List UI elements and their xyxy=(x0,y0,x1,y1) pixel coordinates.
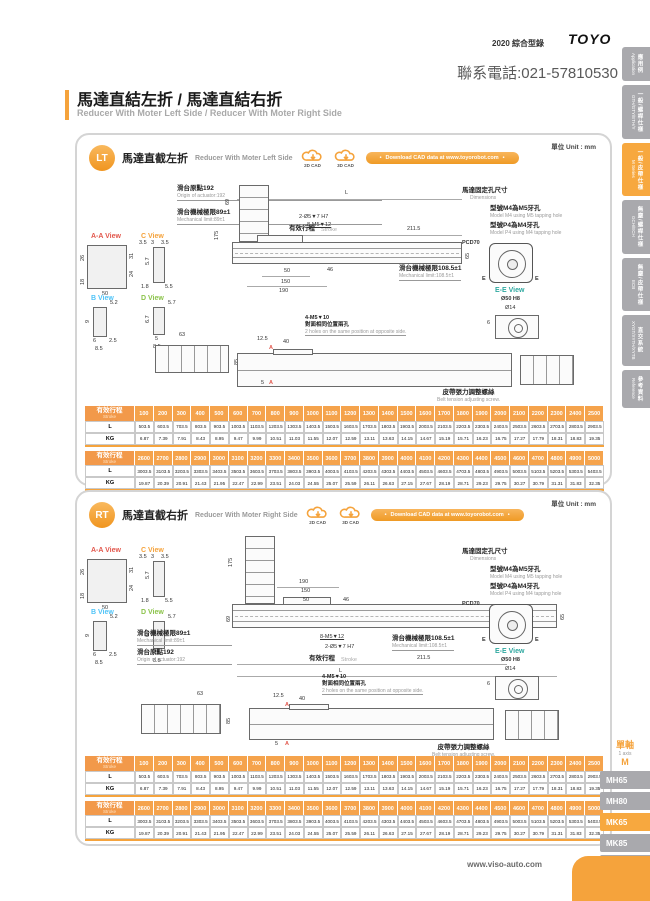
sidebar-tab-2[interactable]: GTH/GTY/ETH/Y一般/螺桿仕樣 xyxy=(622,85,650,139)
sidebar-tab-6[interactable]: XYGT/XYTH/XYTB直交系統 xyxy=(622,315,650,366)
footer-url: www.viso-auto.com xyxy=(400,860,542,869)
weight-value: 18.31 xyxy=(548,783,567,795)
length-value: 4903.5 xyxy=(491,815,510,827)
weight-value: 9.47 xyxy=(229,433,248,445)
weight-value: 22.47 xyxy=(229,477,248,489)
stroke-col-header: 1500 xyxy=(398,756,417,771)
motor-face-view xyxy=(489,604,533,644)
weight-value: 12.07 xyxy=(323,433,342,445)
reducer-end-view xyxy=(520,355,574,385)
series-item-mh80[interactable]: MH80 xyxy=(600,792,650,810)
stroke-col-header: 3900 xyxy=(379,451,398,466)
stroke-col-header: 4000 xyxy=(398,451,417,466)
weight-value: 25.59 xyxy=(341,477,360,489)
dim: 1.8 xyxy=(141,285,149,291)
series-item-mk65[interactable]: MK65 xyxy=(600,813,650,831)
motor-face-view xyxy=(489,243,533,283)
length-value: 903.5 xyxy=(210,421,229,433)
length-value: 5103.5 xyxy=(529,465,548,477)
dim: 12.5 xyxy=(257,337,268,343)
length-value: 4203.5 xyxy=(360,465,379,477)
dim-line xyxy=(262,276,310,277)
weight-value: 26.63 xyxy=(379,477,398,489)
stroke-col-header: 4800 xyxy=(548,801,567,816)
length-value: 4503.5 xyxy=(416,465,435,477)
section-view-d xyxy=(153,307,165,335)
weight-value: 27.15 xyxy=(398,477,417,489)
dim: 175 xyxy=(229,558,235,567)
stroke-col-header: 2700 xyxy=(154,801,173,816)
stroke-col-header: 4100 xyxy=(416,801,435,816)
catalog-page: 2020 綜合型錄 TOYO 聯系電話:021-57810530 馬達直結左折 … xyxy=(0,0,650,901)
length-value: 2003.5 xyxy=(416,421,435,433)
length-value: 1203.5 xyxy=(266,771,285,783)
page-subtitle: Reducer With Moter Left Side / Reducer W… xyxy=(77,108,342,118)
stroke-col-header: 2200 xyxy=(529,756,548,771)
stroke-col-header: 600 xyxy=(229,756,248,771)
carriage-top xyxy=(273,349,313,355)
stroke-col-header: 1800 xyxy=(454,406,473,421)
section-marker-a: A xyxy=(269,381,273,387)
bottom-holes-callout: 4-M5▼10 對面相同位置兩孔 2 holes on the same pos… xyxy=(322,674,423,695)
length-value: 5003.5 xyxy=(510,815,529,827)
sidebar-tab-zh: 參考資料 xyxy=(636,376,642,402)
length-value: 3603.5 xyxy=(248,815,267,827)
dim: 5.7 xyxy=(146,571,152,579)
weight-value: 22.47 xyxy=(229,827,248,839)
model-m4-note: 型號M4為M5牙孔 Model M4 using M5 tapping hole xyxy=(490,566,562,580)
length-value: 2303.5 xyxy=(473,421,492,433)
weight-value: 15.19 xyxy=(435,783,454,795)
length-value: 703.5 xyxy=(173,421,192,433)
stroke-col-header: 2800 xyxy=(173,801,192,816)
weight-value: 16.75 xyxy=(491,783,510,795)
stroke-col-header: 4700 xyxy=(529,801,548,816)
series-group-zh: 單軸 xyxy=(600,738,650,751)
section-marker-e: E xyxy=(482,638,486,644)
dim: 40 xyxy=(283,340,289,346)
stroke-col-header: 200 xyxy=(154,406,173,421)
length-value: 3403.5 xyxy=(210,465,229,477)
length-value: 4803.5 xyxy=(473,815,492,827)
weight-value: 8.43 xyxy=(191,433,210,445)
stroke-col-header: 1000 xyxy=(304,756,323,771)
stroke-col-header: 3500 xyxy=(304,451,323,466)
length-value: 2203.5 xyxy=(454,771,473,783)
length-value: 3803.5 xyxy=(285,465,304,477)
length-value: 2303.5 xyxy=(473,771,492,783)
dim: 5 xyxy=(155,337,158,343)
stroke-col-header: 3700 xyxy=(341,801,360,816)
weight-value: 18.83 xyxy=(566,433,585,445)
stroke-col-header: 3100 xyxy=(229,801,248,816)
dim: 46 xyxy=(327,268,333,274)
weight-value: 7.39 xyxy=(154,433,173,445)
dim: 6 xyxy=(93,339,96,345)
length-value: 3703.5 xyxy=(266,815,285,827)
length-value: 4303.5 xyxy=(379,815,398,827)
weight-value: 28.19 xyxy=(435,477,454,489)
length-value: 503.5 xyxy=(135,421,154,433)
length-value: 1103.5 xyxy=(248,771,267,783)
stroke-col-header: 2000 xyxy=(491,756,510,771)
length-value: 1003.5 xyxy=(229,421,248,433)
stroke-col-header: 900 xyxy=(285,756,304,771)
dim: 26 xyxy=(81,255,87,261)
section-view-aa xyxy=(87,559,127,603)
weight-value: 11.03 xyxy=(285,783,304,795)
stroke-col-header: 2600 xyxy=(135,801,154,816)
length-value: 3103.5 xyxy=(154,815,173,827)
stroke-col-header: 4400 xyxy=(473,801,492,816)
weight-value: 21.43 xyxy=(191,827,210,839)
stroke-col-header: 4300 xyxy=(454,451,473,466)
stroke-col-header: 3200 xyxy=(248,451,267,466)
sidebar-tab-7[interactable]: Reference參考資料 xyxy=(622,370,650,408)
length-value: 2503.5 xyxy=(510,771,529,783)
section-marker-a: A xyxy=(285,742,289,748)
sidebar-tab-zh: 無塵/皮帶仕樣 xyxy=(636,264,642,306)
weight-value: 23.51 xyxy=(266,827,285,839)
stroke-col-header: 2300 xyxy=(548,756,567,771)
length-value: 3503.5 xyxy=(229,465,248,477)
weight-value: 9.99 xyxy=(248,433,267,445)
weight-value: 6.87 xyxy=(135,783,154,795)
stroke-col-header: 4200 xyxy=(435,801,454,816)
length-value: 4103.5 xyxy=(341,465,360,477)
row-label-l: L xyxy=(85,465,135,477)
motor-block xyxy=(239,185,269,242)
dim: 65 xyxy=(561,614,567,620)
length-value: 1703.5 xyxy=(360,771,379,783)
sidebar-tab-en: XYGT/XYTH/XYTB xyxy=(631,321,636,360)
row-label-l: L xyxy=(85,771,135,783)
model-p4-note: 型號P4為M4牙孔 Model P4 using M4 tapping hole xyxy=(490,222,561,236)
weight-value: 25.59 xyxy=(341,827,360,839)
dim: 1.8 xyxy=(141,599,149,605)
weight-value: 8.95 xyxy=(210,783,229,795)
section-tab-sidebar: Application應用例GTH/GTY/ETH/Y一般/螺桿仕樣M Seri… xyxy=(622,47,650,412)
weight-value: 31.83 xyxy=(566,477,585,489)
stroke-col-header: 3800 xyxy=(360,801,379,816)
weight-value: 14.67 xyxy=(416,783,435,795)
dim: 3 xyxy=(151,241,154,247)
stroke-col-header: 300 xyxy=(173,406,192,421)
sidebar-tab-en: GCH/ECH xyxy=(631,216,636,237)
model-p4-note: 型號P4為M4牙孔 Model P4 using M4 tapping hole xyxy=(490,583,561,597)
dim: 3.5 xyxy=(139,555,147,561)
stroke-col-header: 3400 xyxy=(285,801,304,816)
length-value: 2803.5 xyxy=(566,421,585,433)
stroke-col-header: 100 xyxy=(135,756,154,771)
stroke-col-header: 800 xyxy=(266,406,285,421)
stroke-col-header: 2100 xyxy=(510,406,529,421)
dim-line xyxy=(277,587,339,588)
length-value: 903.5 xyxy=(210,771,229,783)
weight-value: 28.71 xyxy=(454,477,473,489)
weight-value: 13.63 xyxy=(379,783,398,795)
dim: Stroke xyxy=(341,658,357,664)
view-label-c: C View xyxy=(141,233,164,240)
weight-value: 21.95 xyxy=(210,827,229,839)
stroke-col-header: 2500 xyxy=(585,406,604,421)
weight-value: 30.79 xyxy=(529,477,548,489)
stroke-col-header: 300 xyxy=(173,756,192,771)
length-value: 3503.5 xyxy=(229,815,248,827)
weight-value: 13.11 xyxy=(360,783,379,795)
dim: Ø50 H8 xyxy=(501,297,520,303)
stroke-col-header: 3300 xyxy=(266,801,285,816)
dim-line xyxy=(237,199,462,200)
stroke-col-header: 1300 xyxy=(360,406,379,421)
catalog-edition: 2020 綜合型錄 xyxy=(492,38,544,49)
length-value: 1103.5 xyxy=(248,421,267,433)
stroke-col-header: 1700 xyxy=(435,406,454,421)
weight-value: 17.27 xyxy=(510,433,529,445)
dim: 9 xyxy=(86,634,92,637)
dim: 3 xyxy=(151,555,154,561)
stroke-col-header: 1000 xyxy=(304,406,323,421)
dim: 26 xyxy=(81,569,87,575)
stroke-col-header: 1300 xyxy=(360,756,379,771)
ee-section-view xyxy=(495,315,539,339)
length-value: 3603.5 xyxy=(248,465,267,477)
length-value: 3303.5 xyxy=(191,465,210,477)
view-label-c: C View xyxy=(141,547,164,554)
weight-value: 13.11 xyxy=(360,433,379,445)
dim: 18 xyxy=(81,279,87,285)
sidebar-tab-en: ECB xyxy=(631,280,636,289)
weight-value: 10.51 xyxy=(266,433,285,445)
weight-value: 15.71 xyxy=(454,783,473,795)
dim: 211.5 xyxy=(417,656,430,662)
view-label-d: D View xyxy=(141,609,164,616)
hole-callout-1: 2-Ø5▼7 H7 xyxy=(325,645,354,651)
hole-callout-2: 8-M5▼12 xyxy=(320,635,344,641)
length-value: 2603.5 xyxy=(529,771,548,783)
series-item-mh65[interactable]: MH65 xyxy=(600,771,650,789)
length-value: 1403.5 xyxy=(304,421,323,433)
dim: 85 xyxy=(227,718,233,724)
weight-value: 8.43 xyxy=(191,783,210,795)
length-value: 4603.5 xyxy=(435,815,454,827)
stroke-col-header: 4500 xyxy=(491,451,510,466)
stroke-col-header: 2100 xyxy=(510,756,529,771)
reducer-side-view xyxy=(141,704,221,734)
sidebar-tab-3[interactable]: M Series一般/皮帶仕樣 xyxy=(622,143,650,197)
stroke-dim-label: 有效行程 xyxy=(309,655,335,663)
weight-value: 17.27 xyxy=(510,783,529,795)
weight-value: 26.11 xyxy=(360,477,379,489)
length-value: 2003.5 xyxy=(416,771,435,783)
dim: 5 xyxy=(261,381,264,387)
stroke-col-header: 400 xyxy=(191,756,210,771)
length-value: 2803.5 xyxy=(566,771,585,783)
row-label-l: L xyxy=(85,815,135,827)
length-value: 3803.5 xyxy=(285,815,304,827)
sidebar-tab-en: Reference xyxy=(631,378,636,399)
weight-value: 8.95 xyxy=(210,433,229,445)
stroke-col-header: 1600 xyxy=(416,756,435,771)
stroke-col-header: 2900 xyxy=(191,451,210,466)
stroke-col-header: 2800 xyxy=(173,451,192,466)
length-value: 1303.5 xyxy=(285,771,304,783)
weight-value: 25.07 xyxy=(323,827,342,839)
dim: 31 xyxy=(130,567,136,573)
length-value: 1803.5 xyxy=(379,771,398,783)
length-value: 1403.5 xyxy=(304,771,323,783)
length-value: 4703.5 xyxy=(454,815,473,827)
sidebar-tab-1[interactable]: Application應用例 xyxy=(622,47,650,81)
stroke-col-header: 500 xyxy=(210,756,229,771)
dim: 12.5 xyxy=(273,694,284,700)
weight-value: 26.11 xyxy=(360,827,379,839)
weight-value: 17.79 xyxy=(529,433,548,445)
weight-value: 20.91 xyxy=(173,477,192,489)
weight-value: 21.95 xyxy=(210,477,229,489)
weight-value: 11.55 xyxy=(304,783,323,795)
dim: 5.5 xyxy=(165,285,173,291)
dim: 40 xyxy=(299,697,305,703)
dim: 9 xyxy=(86,320,92,323)
length-value: 4803.5 xyxy=(473,465,492,477)
stroke-col-header: 3000 xyxy=(210,801,229,816)
length-value: 2403.5 xyxy=(491,771,510,783)
stroke-col-header: 4600 xyxy=(510,451,529,466)
stroke-header-en: Stroke xyxy=(85,415,134,420)
page-title: 馬達直結左折 / 馬達直結右折 xyxy=(77,86,282,110)
dim: 6 xyxy=(487,682,490,688)
length-value: 4003.5 xyxy=(323,465,342,477)
weight-value: 24.03 xyxy=(285,477,304,489)
stroke-col-header: 1500 xyxy=(398,406,417,421)
length-value: 4703.5 xyxy=(454,465,473,477)
sidebar-tab-5[interactable]: ECB無塵/皮帶仕樣 xyxy=(622,258,650,312)
stroke-col-header: 700 xyxy=(248,756,267,771)
motor-holes-title: 馬達固定孔尺寸 Dimensions xyxy=(462,548,508,562)
stroke-col-header: 1100 xyxy=(323,756,342,771)
section-view-b xyxy=(93,621,107,651)
sidebar-tab-zh: 應用例 xyxy=(636,54,642,74)
dim: 3.5 xyxy=(161,555,169,561)
weight-value: 12.59 xyxy=(341,433,360,445)
stroke-col-header: 600 xyxy=(229,406,248,421)
mech-limit-108-label: 滑台機械極限108.5±1 Mechanical limit:108.5±1 xyxy=(399,265,461,281)
length-value: 3003.5 xyxy=(135,465,154,477)
section-marker-e: E xyxy=(535,638,539,644)
stroke-header-label: 有效行程Stroke xyxy=(85,756,135,771)
length-value: 2503.5 xyxy=(510,421,529,433)
length-value: 4403.5 xyxy=(398,465,417,477)
dim: 3.5 xyxy=(139,241,147,247)
row-label-kg: KG xyxy=(85,477,135,489)
weight-value: 23.51 xyxy=(266,477,285,489)
row-label-kg: KG xyxy=(85,433,135,445)
weight-value: 26.63 xyxy=(379,827,398,839)
dim: 6 xyxy=(487,321,490,327)
length-value: 1203.5 xyxy=(266,421,285,433)
dim: 18 xyxy=(81,593,87,599)
weight-value: 14.67 xyxy=(416,433,435,445)
series-item-mk85[interactable]: MK85 xyxy=(600,834,650,852)
stroke-col-header: 3800 xyxy=(360,451,379,466)
stroke-header-en: Stroke xyxy=(85,765,134,770)
dim: 190 xyxy=(279,289,288,295)
weight-value: 7.39 xyxy=(154,783,173,795)
length-value: 2603.5 xyxy=(529,421,548,433)
weight-value: 13.63 xyxy=(379,433,398,445)
stroke-col-header: 1200 xyxy=(341,406,360,421)
weight-value: 28.71 xyxy=(454,827,473,839)
weight-value: 27.67 xyxy=(416,827,435,839)
pcd-dim: PCD70 xyxy=(462,602,480,608)
dim-l: L xyxy=(345,191,348,197)
stroke-col-header: 2200 xyxy=(529,406,548,421)
section-view-c xyxy=(153,247,165,283)
stroke-col-header: 4900 xyxy=(566,451,585,466)
weight-value: 7.91 xyxy=(173,433,192,445)
length-value: 3903.5 xyxy=(304,815,323,827)
length-value: 3703.5 xyxy=(266,465,285,477)
weight-value: 16.23 xyxy=(473,433,492,445)
weight-value: 30.27 xyxy=(510,827,529,839)
stroke-col-header: 3700 xyxy=(341,451,360,466)
length-value: 1003.5 xyxy=(229,771,248,783)
sidebar-tab-en: Application xyxy=(631,53,636,75)
stroke-col-header: 1900 xyxy=(473,406,492,421)
brand-logo: TOYO xyxy=(568,31,611,47)
length-value: 4603.5 xyxy=(435,465,454,477)
dim: Stroke xyxy=(321,228,337,234)
stroke-tables: 有效行程Stroke100200300400500600700800900100… xyxy=(85,756,604,845)
stroke-col-header: 4000 xyxy=(398,801,417,816)
length-value: 5203.5 xyxy=(548,815,567,827)
dim: 69 xyxy=(226,199,232,205)
length-value: 803.5 xyxy=(191,771,210,783)
weight-value: 17.79 xyxy=(529,783,548,795)
weight-value: 19.87 xyxy=(135,477,154,489)
row-label-l: L xyxy=(85,421,135,433)
dim: 5.7 xyxy=(168,301,176,307)
stroke-col-header: 1900 xyxy=(473,756,492,771)
section-marker-e: E xyxy=(482,277,486,283)
stroke-col-header: 4400 xyxy=(473,451,492,466)
dim: 150 xyxy=(281,280,290,286)
weight-value: 28.19 xyxy=(435,827,454,839)
length-value: 3203.5 xyxy=(173,465,192,477)
weight-value: 15.19 xyxy=(435,433,454,445)
length-value: 1803.5 xyxy=(379,421,398,433)
dim: 46 xyxy=(343,598,349,604)
weight-value: 31.83 xyxy=(566,827,585,839)
stroke-col-header: 3600 xyxy=(323,801,342,816)
stroke-header-en: Stroke xyxy=(85,810,134,815)
length-value: 2703.5 xyxy=(548,421,567,433)
stroke-col-header: 2600 xyxy=(135,451,154,466)
dim: 5.5 xyxy=(165,599,173,605)
stroke-col-header: 3000 xyxy=(210,451,229,466)
length-value: 4003.5 xyxy=(323,815,342,827)
length-value: 3903.5 xyxy=(304,465,323,477)
sidebar-tab-zh: 無塵/螺桿仕樣 xyxy=(636,206,642,248)
length-value: 603.5 xyxy=(154,771,173,783)
dim: 3.5 xyxy=(161,241,169,247)
dim: 2.5 xyxy=(109,653,117,659)
hole-callout-1: 2-Ø5▼7 H7 xyxy=(299,215,328,221)
sidebar-tab-4[interactable]: GCH/ECH無塵/螺桿仕樣 xyxy=(622,200,650,254)
stroke-col-header: 1400 xyxy=(379,756,398,771)
dim: Ø14 xyxy=(505,667,515,673)
